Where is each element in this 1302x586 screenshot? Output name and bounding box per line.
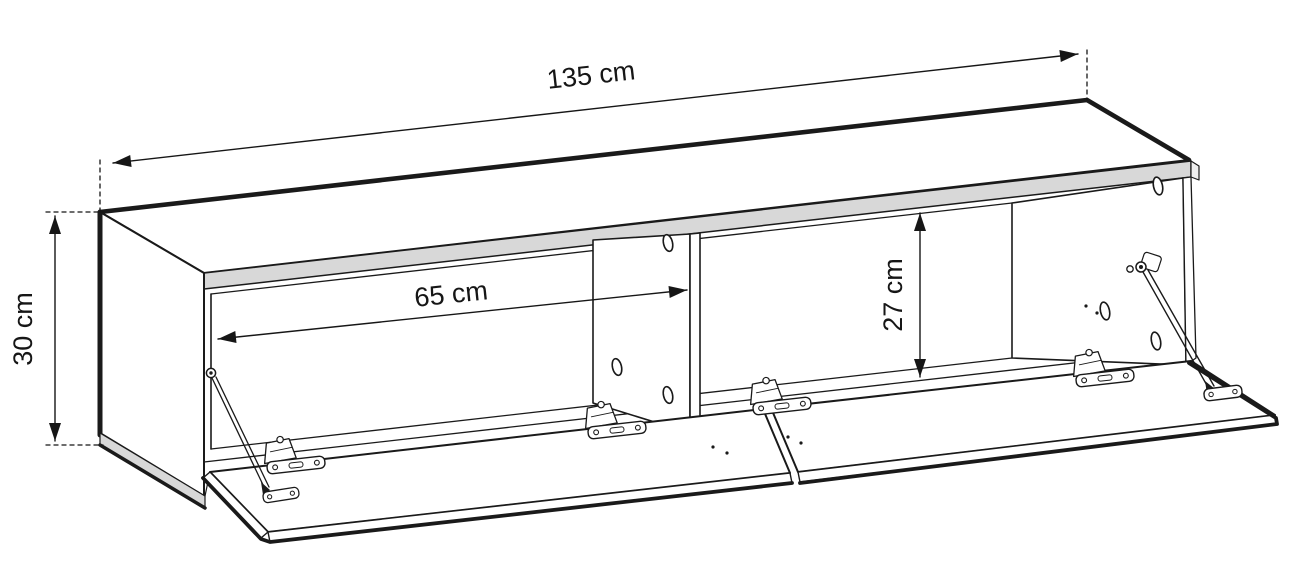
arrowhead <box>49 423 61 441</box>
pilot-hole-dot <box>799 441 802 444</box>
dimension-overall-height: 30 cm <box>8 212 103 445</box>
arrowhead <box>218 331 237 343</box>
right-flap-door <box>771 361 1277 483</box>
pilot-hole-dot <box>725 451 728 454</box>
center-partition <box>593 233 700 433</box>
pilot-hole-dot <box>711 445 714 448</box>
overall-width-label: 135 cm <box>545 55 636 95</box>
dimension-compartment-height: 27 cm <box>878 213 926 377</box>
pilot-hole-dot <box>786 435 789 438</box>
partition-front-edge <box>690 233 700 433</box>
cabinet-body <box>100 100 1277 542</box>
flap-doors <box>203 361 1277 542</box>
cabinet-drawing-svg: 135 cm 30 cm 65 cm 27 cm <box>0 0 1302 586</box>
pilot-hole-dot <box>1095 311 1098 314</box>
overall-height-label: 30 cm <box>8 292 38 366</box>
compartment-width-label: 65 cm <box>413 275 489 313</box>
top-panel-end-cap <box>1191 161 1199 180</box>
furniture-dimension-diagram: 135 cm 30 cm 65 cm 27 cm <box>0 0 1302 586</box>
right-side-panel <box>1012 176 1196 365</box>
compartment-height-label: 27 cm <box>878 258 908 332</box>
arrowhead <box>1059 50 1078 62</box>
right-panel-front-edge <box>1183 177 1196 365</box>
arrowhead <box>113 155 132 167</box>
hinge <box>262 432 326 475</box>
arrowhead <box>914 213 926 231</box>
arrowhead <box>49 216 61 234</box>
pilot-hole-dot <box>1084 304 1087 307</box>
